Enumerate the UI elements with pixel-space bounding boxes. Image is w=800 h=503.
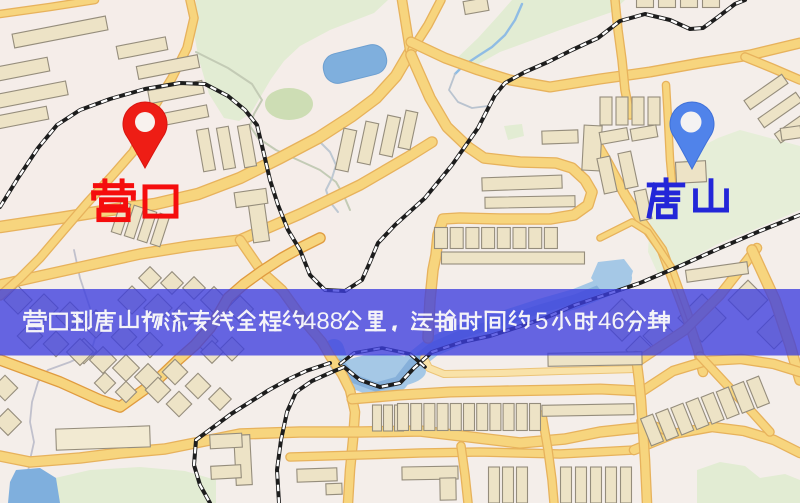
svg-text:.: . (662, 308, 669, 335)
svg-text:488: 488 (303, 308, 343, 335)
svg-text:5: 5 (535, 308, 548, 335)
svg-text:46: 46 (598, 308, 625, 335)
